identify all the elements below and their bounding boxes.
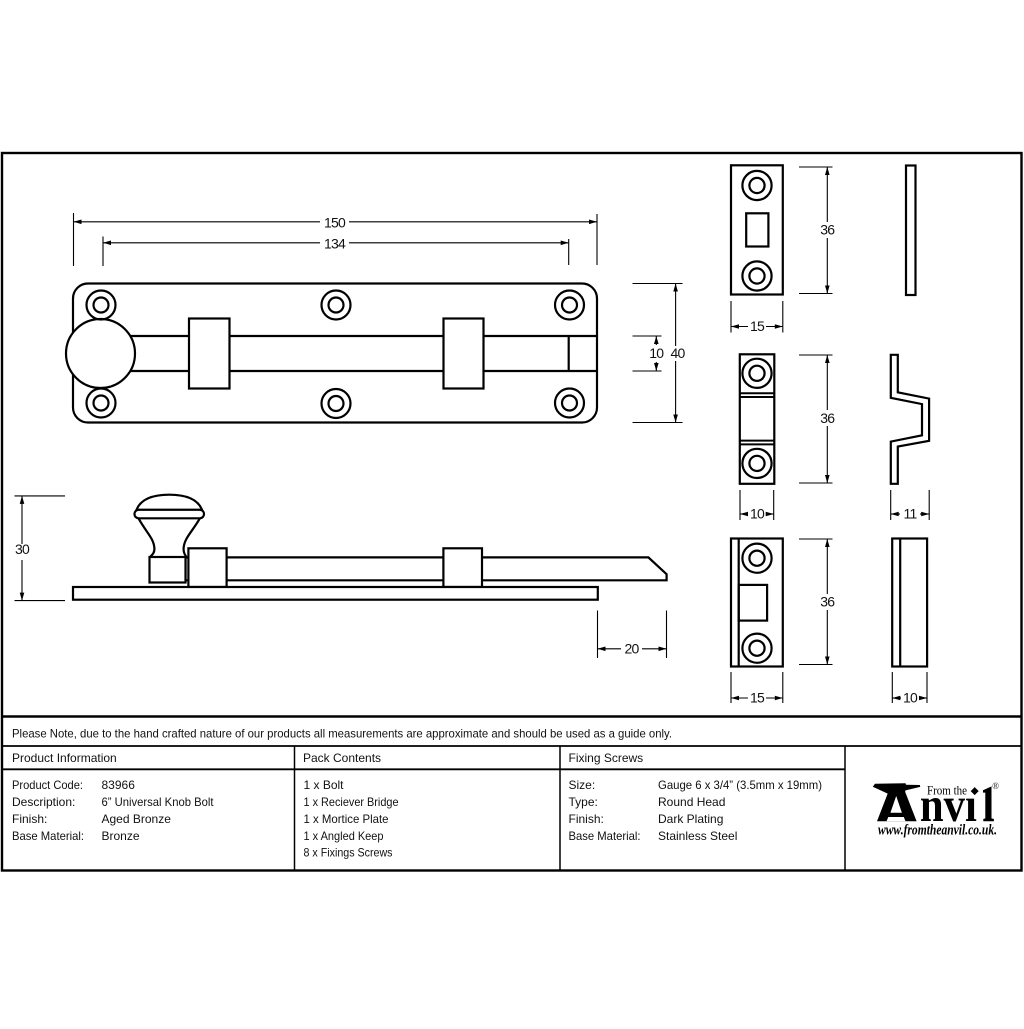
svg-text:30: 30 <box>15 541 30 557</box>
svg-text:Product Code:: Product Code: <box>12 778 83 792</box>
svg-text:15: 15 <box>750 690 765 706</box>
svg-text:Aged Bronze: Aged Bronze <box>102 812 172 826</box>
svg-text:36: 36 <box>820 594 835 610</box>
svg-text:10: 10 <box>750 506 765 522</box>
svg-text:150: 150 <box>324 214 346 230</box>
svg-text:Size:: Size: <box>569 778 596 792</box>
svg-text:10: 10 <box>903 690 918 706</box>
svg-text:Base Material:: Base Material: <box>569 829 641 843</box>
svg-text:Round Head: Round Head <box>658 795 725 809</box>
svg-text:20: 20 <box>625 640 640 656</box>
svg-text:36: 36 <box>820 222 835 238</box>
svg-text:Stainless Steel: Stainless Steel <box>658 829 737 843</box>
svg-text:1 x Reciever Bridge: 1 x Reciever Bridge <box>304 795 399 809</box>
svg-text:Please Note, due to the hand c: Please Note, due to the hand crafted nat… <box>12 726 672 740</box>
svg-text:Fixing Screws: Fixing Screws <box>569 751 644 765</box>
svg-text:11: 11 <box>904 506 918 522</box>
svg-text:Dark Plating: Dark Plating <box>658 812 723 826</box>
svg-text:15: 15 <box>750 318 765 334</box>
svg-text:Gauge 6 x 3/4” (3.5mm x 19mm): Gauge 6 x 3/4” (3.5mm x 19mm) <box>658 778 822 792</box>
svg-text:®: ® <box>992 781 999 791</box>
svg-text:www.fromtheanvil.co.uk.: www.fromtheanvil.co.uk. <box>878 823 997 839</box>
svg-text:1 x Mortice Plate: 1 x Mortice Plate <box>304 812 389 826</box>
svg-text:Type:: Type: <box>569 795 598 809</box>
svg-text:83966: 83966 <box>102 778 136 792</box>
svg-text:40: 40 <box>671 345 686 361</box>
svg-text:10: 10 <box>649 345 664 361</box>
svg-text:Description:: Description: <box>12 795 75 809</box>
svg-text:1 x Angled Keep: 1 x Angled Keep <box>304 829 384 843</box>
svg-text:36: 36 <box>820 410 835 426</box>
svg-text:Pack Contents: Pack Contents <box>303 751 381 765</box>
svg-text:Finish:: Finish: <box>12 812 47 826</box>
svg-text:6” Universal Knob Bolt: 6” Universal Knob Bolt <box>102 795 215 809</box>
svg-text:8 x Fixings Screws: 8 x Fixings Screws <box>304 846 393 860</box>
svg-text:1 x Bolt: 1 x Bolt <box>304 778 345 792</box>
svg-text:Bronze: Bronze <box>102 829 140 843</box>
svg-text:Finish:: Finish: <box>569 812 604 826</box>
svg-text:Product Information: Product Information <box>12 751 117 765</box>
svg-text:Base Material:: Base Material: <box>12 829 84 843</box>
svg-text:134: 134 <box>324 235 346 251</box>
